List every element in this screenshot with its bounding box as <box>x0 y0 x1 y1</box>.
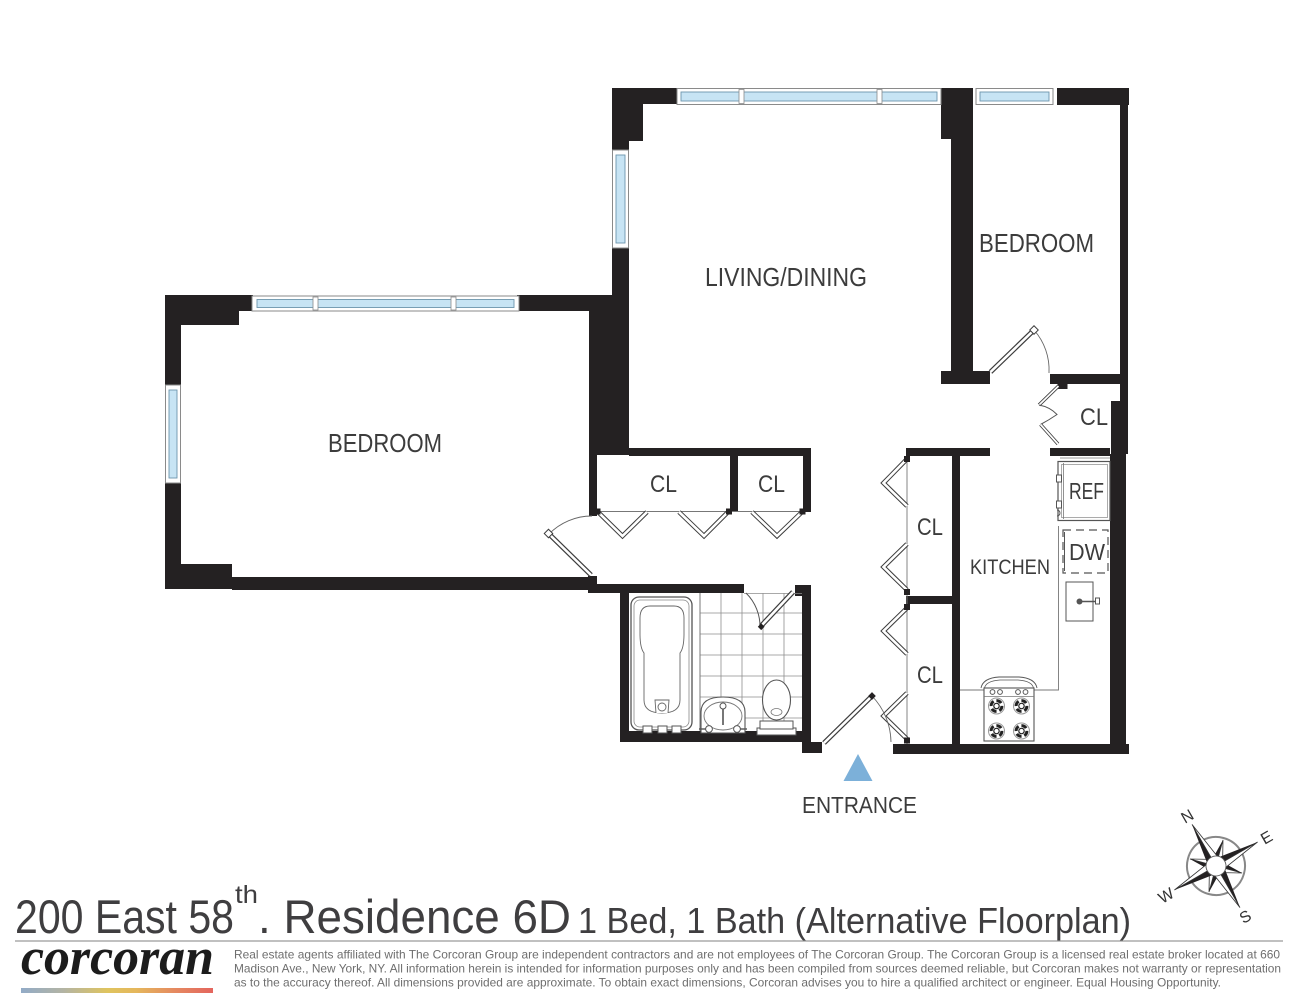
svg-text:N: N <box>1178 807 1197 828</box>
svg-text:BEDROOM: BEDROOM <box>328 428 442 458</box>
svg-text:th: th <box>235 881 258 909</box>
svg-text:ENTRANCE: ENTRANCE <box>802 792 917 818</box>
svg-text:DW: DW <box>1069 539 1105 565</box>
svg-text:1 Bed, 1 Bath (Alternative Flo: 1 Bed, 1 Bath (Alternative Floorplan) <box>578 900 1131 941</box>
svg-text:E: E <box>1258 828 1276 848</box>
svg-text:LIVING/DINING: LIVING/DINING <box>705 262 867 292</box>
svg-text:CL: CL <box>758 471 785 498</box>
svg-text:. Residence 6D: . Residence 6D <box>258 890 571 943</box>
svg-text:CL: CL <box>917 662 943 689</box>
svg-text:CL: CL <box>650 471 677 498</box>
svg-text:S: S <box>1237 907 1255 927</box>
svg-text:REF: REF <box>1069 478 1104 504</box>
svg-text:CL: CL <box>1080 404 1108 431</box>
svg-text:Madison Ave., New York, NY. Al: Madison Ave., New York, NY. All informat… <box>234 963 1281 976</box>
svg-text:Real estate agents affiliated: Real estate agents affiliated with The C… <box>234 949 1280 962</box>
svg-text:BEDROOM: BEDROOM <box>979 228 1094 258</box>
svg-text:corcoran: corcoran <box>21 929 214 986</box>
svg-text:W: W <box>1156 885 1178 908</box>
svg-text:KITCHEN: KITCHEN <box>970 556 1050 579</box>
svg-text:CL: CL <box>917 514 943 541</box>
svg-text:as to the accuracy thereof. Al: as to the accuracy thereof. All dimensio… <box>234 977 1221 990</box>
